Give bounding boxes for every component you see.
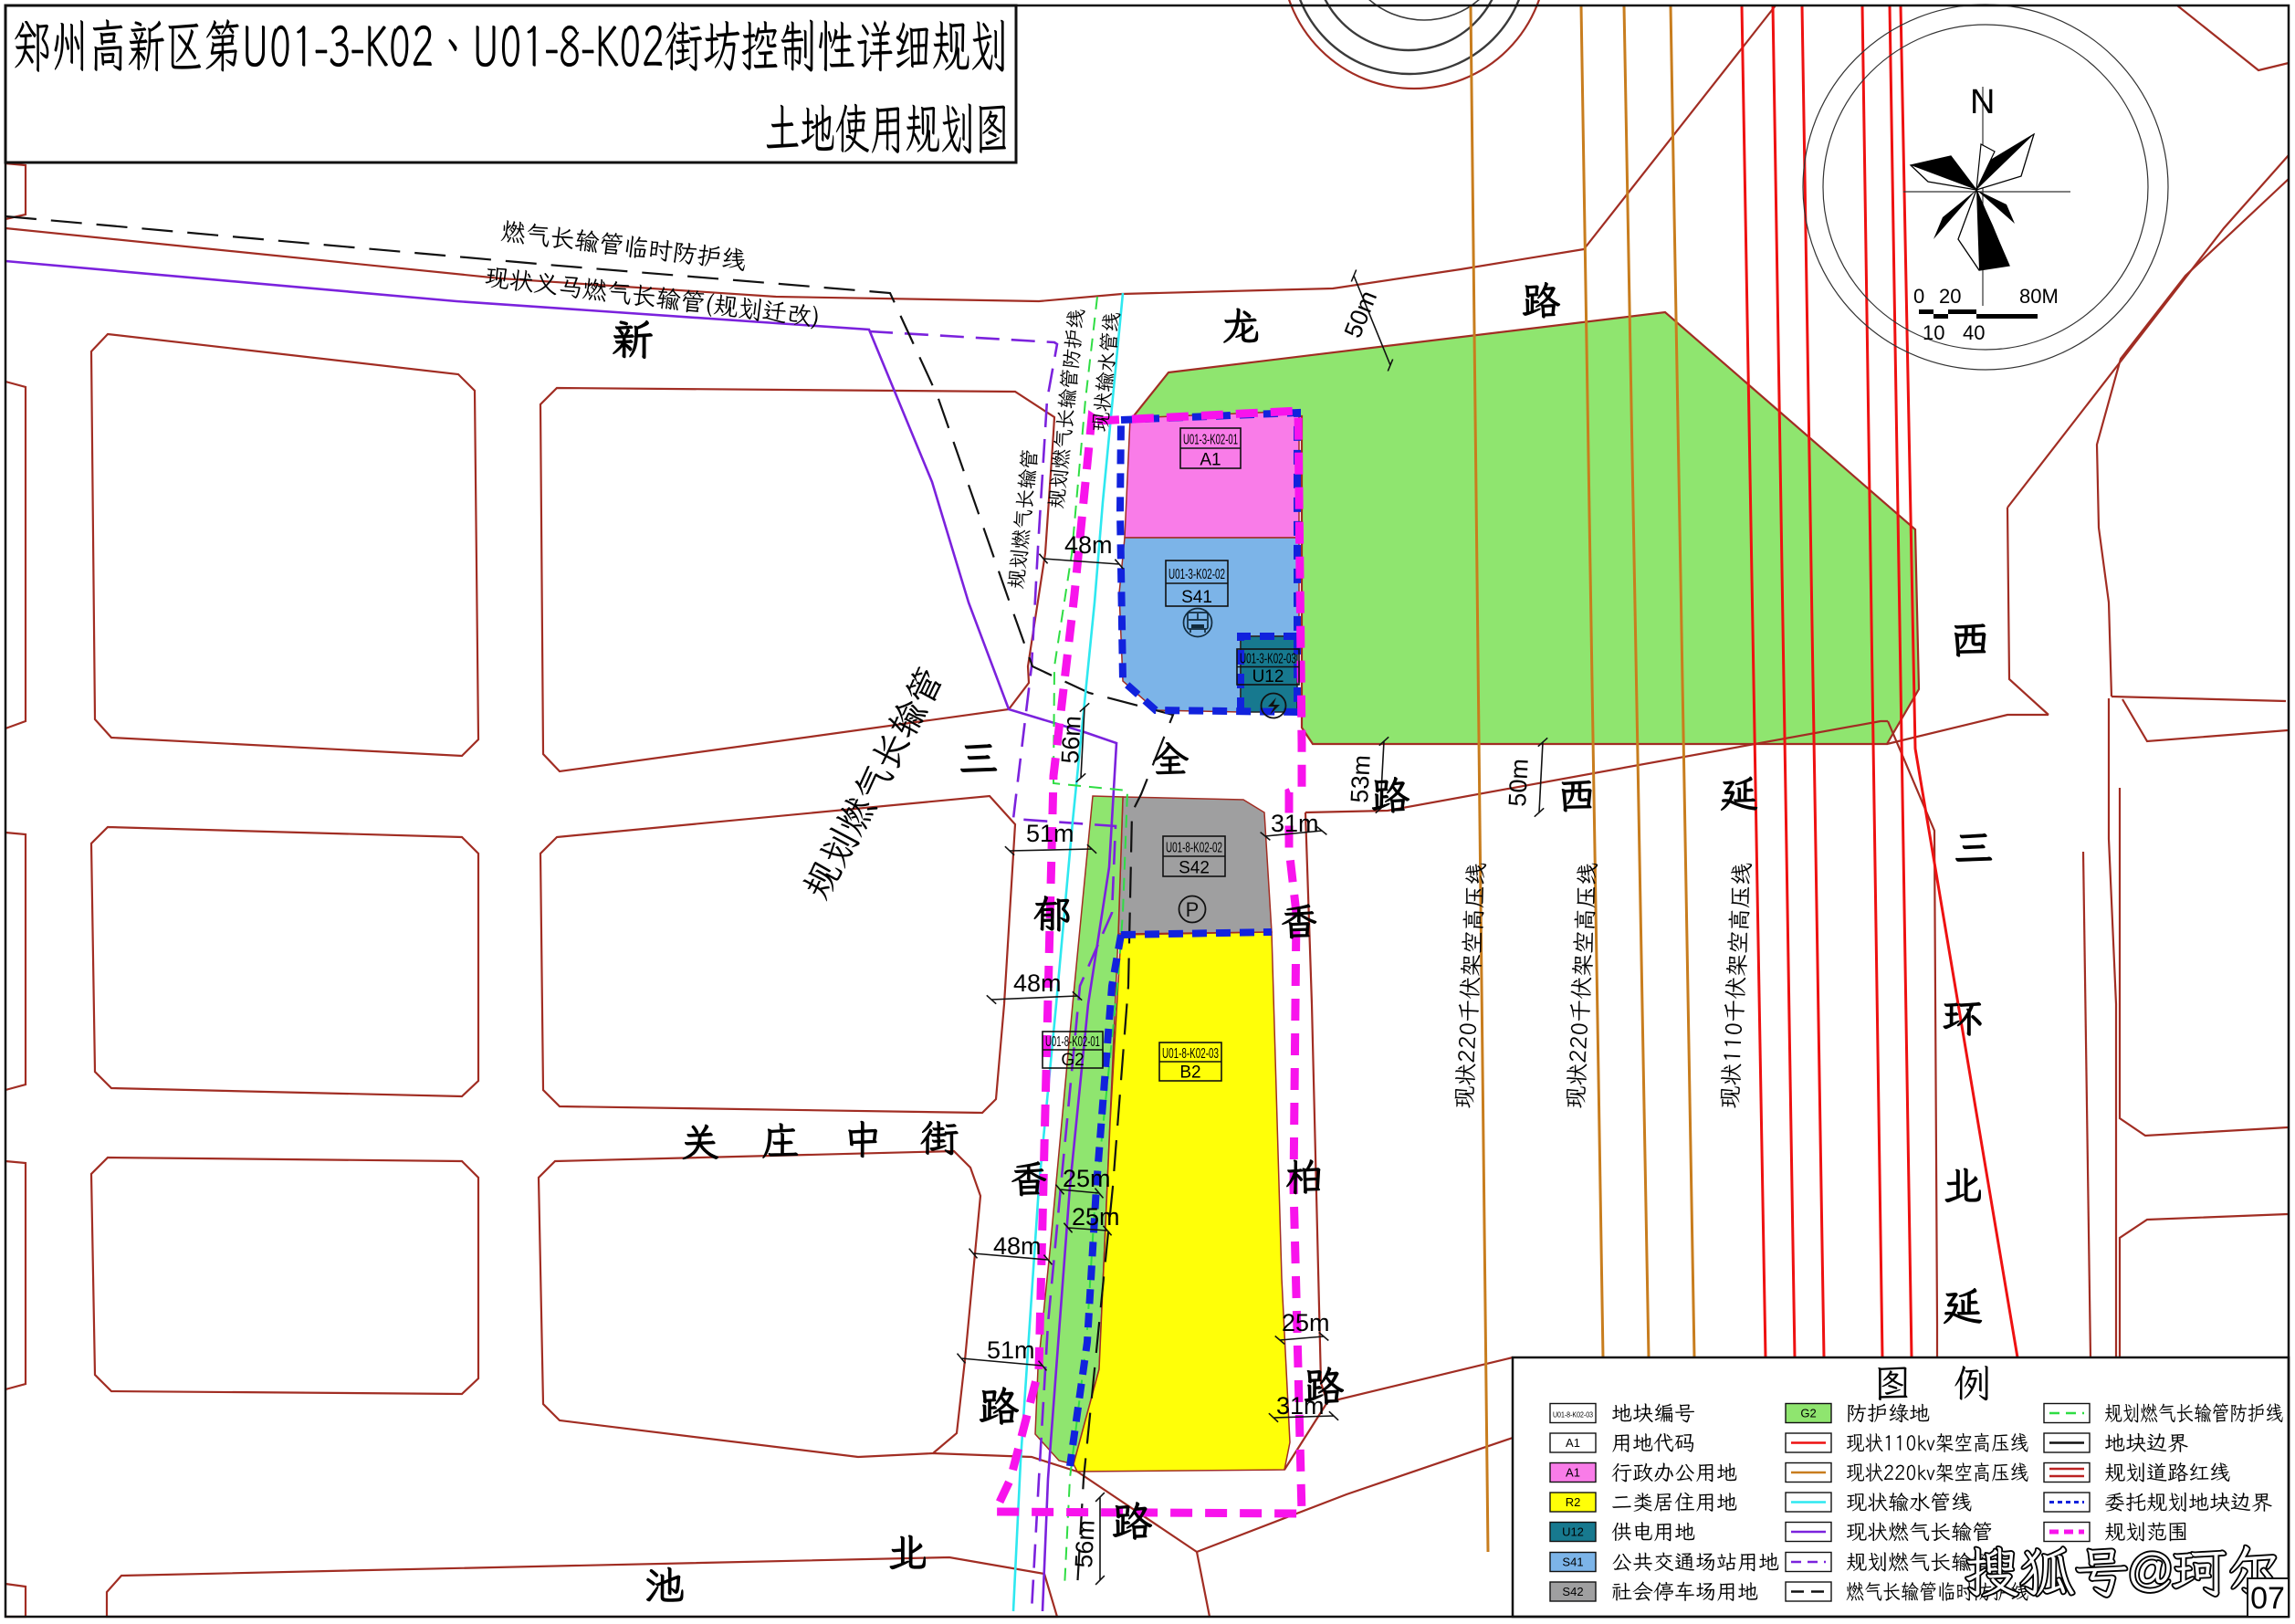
svg-text:31m: 31m [1271, 810, 1319, 837]
svg-text:80M: 80M [2019, 285, 2059, 308]
svg-text:U01-8-K02-01: U01-8-K02-01 [1045, 1034, 1100, 1050]
svg-text:U12: U12 [1562, 1525, 1584, 1539]
svg-text:U01-8-K02-02: U01-8-K02-02 [1166, 841, 1222, 856]
svg-text:U01-3-K02-03: U01-3-K02-03 [1240, 652, 1296, 667]
svg-text:S42: S42 [1179, 858, 1210, 877]
svg-text:53m: 53m [1346, 754, 1376, 803]
svg-text:G2: G2 [1061, 1051, 1084, 1070]
svg-text:U12: U12 [1252, 667, 1284, 686]
svg-text:R2: R2 [1566, 1495, 1581, 1509]
svg-text:40: 40 [1963, 321, 1985, 344]
svg-text:A1: A1 [1566, 1436, 1580, 1450]
svg-text:51m: 51m [987, 1336, 1035, 1364]
svg-text:51m: 51m [1026, 820, 1074, 847]
svg-text:U01-3-K02-02: U01-3-K02-02 [1168, 567, 1225, 582]
svg-text:50m: 50m [1504, 758, 1534, 807]
svg-text:A1: A1 [1200, 450, 1221, 469]
svg-text:56m: 56m [1056, 715, 1086, 764]
svg-text:0: 0 [1913, 285, 1924, 308]
svg-text:25m: 25m [1063, 1165, 1111, 1192]
svg-text:G2: G2 [1800, 1407, 1816, 1420]
svg-text:S41: S41 [1181, 588, 1212, 607]
svg-text:U01-8-K02-03: U01-8-K02-03 [1162, 1046, 1219, 1062]
svg-text:U01-8-K02-03: U01-8-K02-03 [1553, 1410, 1593, 1420]
svg-text:07: 07 [2250, 1581, 2285, 1616]
svg-text:S42: S42 [1562, 1585, 1583, 1598]
svg-text:10: 10 [1923, 321, 1944, 344]
svg-text:B2: B2 [1179, 1063, 1200, 1083]
svg-text:56m: 56m [1070, 1519, 1100, 1568]
svg-text:25m: 25m [1072, 1203, 1120, 1231]
svg-text:20: 20 [1939, 285, 1961, 308]
svg-text:48m: 48m [1013, 969, 1062, 997]
svg-text:A1: A1 [1566, 1466, 1580, 1480]
svg-text:48m: 48m [1064, 531, 1113, 559]
svg-text:N: N [1970, 83, 1995, 121]
svg-text:S41: S41 [1562, 1556, 1583, 1569]
svg-text:P: P [1186, 898, 1200, 921]
svg-text:48m: 48m [993, 1232, 1042, 1260]
svg-text:U01-3-K02-01: U01-3-K02-01 [1183, 433, 1238, 448]
svg-text:25m: 25m [1282, 1309, 1330, 1336]
